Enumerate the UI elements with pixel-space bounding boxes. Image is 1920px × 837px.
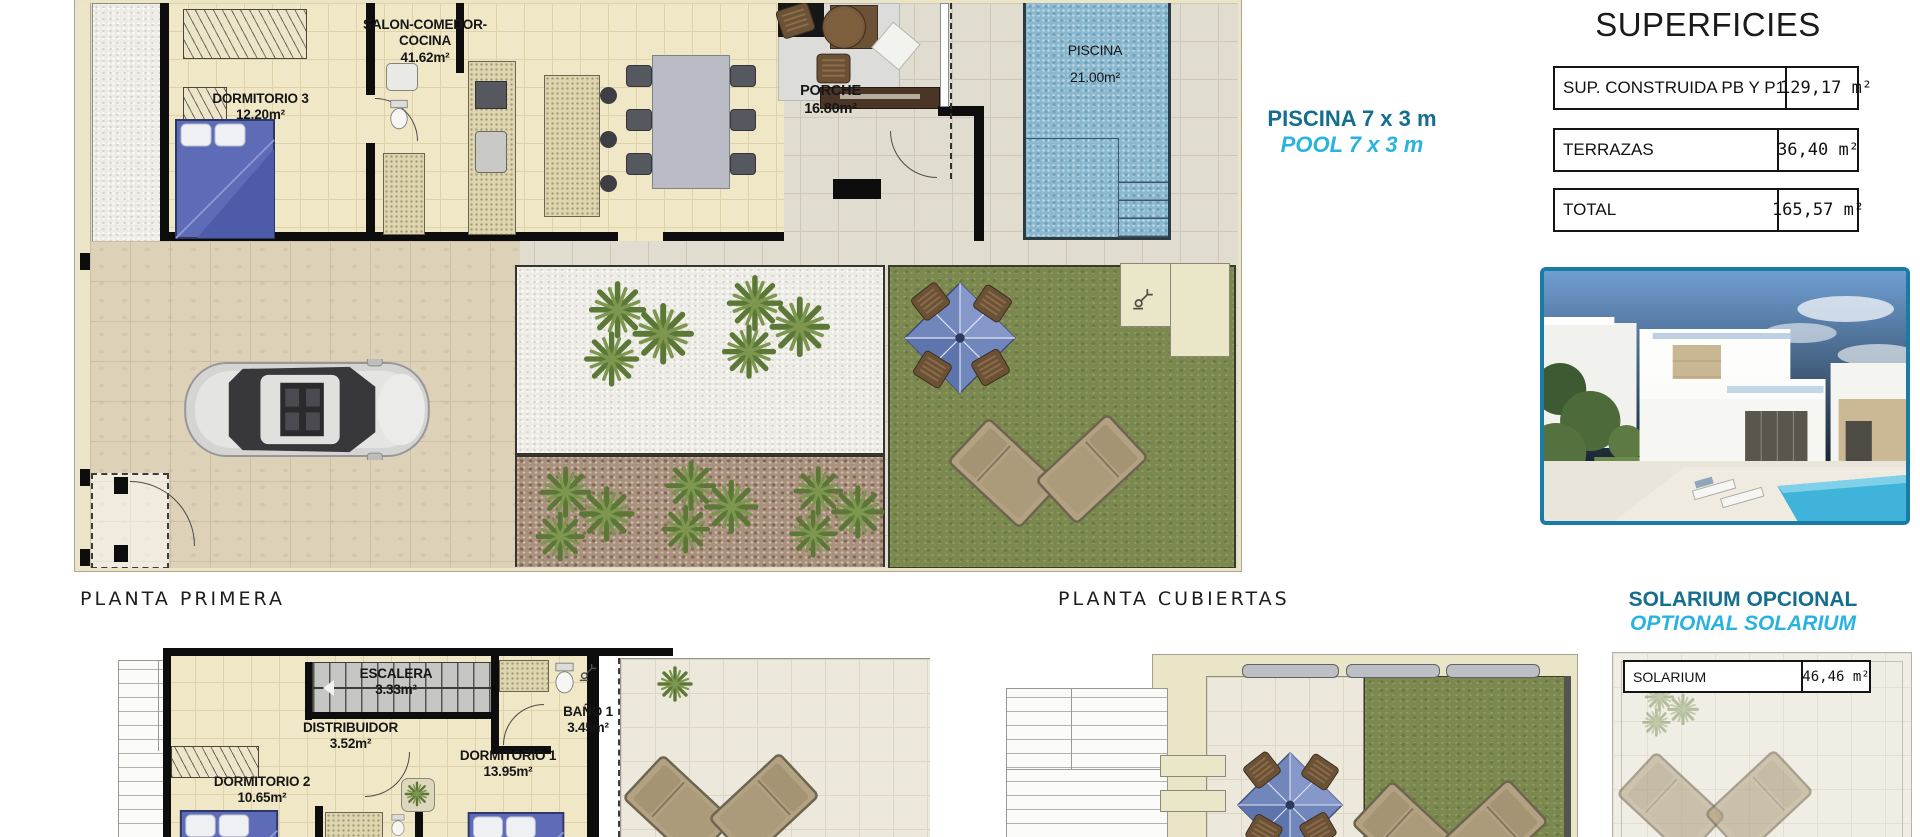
pool-size-en: POOL 7 x 3 m <box>1252 132 1452 158</box>
roof-plan <box>906 648 1606 837</box>
pool <box>1023 0 1171 240</box>
bed-icon <box>174 119 276 239</box>
villa-photo-render <box>1544 271 1906 521</box>
terrace-dashed-boundary <box>618 658 620 837</box>
solarium-title: SOLARIUM OPCIONAL OPTIONAL SOLARIUM <box>1608 588 1878 636</box>
superficies-row-label: SUP. CONSTRUIDA PB Y P1 <box>1555 68 1787 108</box>
toilet-icon <box>388 99 410 131</box>
first-floor-plan: ESCALERA 3.33m² DISTRIBUIDOR 3.52m² BAÑO… <box>115 648 930 837</box>
superficies-row-value: 36,40 m² <box>1779 130 1857 170</box>
wall <box>366 143 375 241</box>
room-label-dormitorio3: DORMITORIO 3 12.20m² <box>188 91 333 124</box>
kitchen-island <box>544 75 600 217</box>
room-area: 3.33m² <box>331 682 461 698</box>
bed-icon <box>179 810 279 837</box>
gate-post <box>114 545 128 562</box>
room-name: SALON-COMEDOR-COCINA <box>340 17 510 50</box>
wall-stub <box>833 179 881 199</box>
room-label-escalera: ESCALERA 3.33m² <box>331 666 461 699</box>
gate-post <box>114 477 128 494</box>
label-planta-primera: PLANTA PRIMERA <box>80 588 285 610</box>
dining-chair <box>626 153 652 175</box>
superficies-title: SUPERFICIES <box>1553 6 1863 44</box>
partial-area-label: 1.00m² <box>613 0 723 3</box>
dining-table <box>652 55 730 189</box>
room-label-piscina: PISCINA 21.00m² <box>1026 37 1164 90</box>
wall <box>305 662 312 720</box>
wardrobe <box>183 9 307 59</box>
stool <box>600 131 617 148</box>
wall <box>160 3 169 241</box>
superficies-row: TERRAZAS 36,40 m² <box>1553 128 1859 172</box>
room-name: PISCINA <box>1026 37 1164 64</box>
kitchen-sink <box>475 131 507 173</box>
bath-floor <box>383 153 425 235</box>
pool-lane <box>1026 138 1119 237</box>
exterior-stairs <box>1006 688 1168 837</box>
toilet-icon <box>387 814 409 837</box>
villa-photo <box>1540 267 1910 525</box>
vanity <box>499 660 549 692</box>
wall <box>974 106 984 241</box>
solarium-table-label: SOLARIUM <box>1625 662 1803 691</box>
bench <box>1160 790 1226 812</box>
bed-icon <box>467 812 565 837</box>
shower-pad <box>1170 263 1230 357</box>
room-label-salon: SALON-COMEDOR-COCINA 41.62m² <box>340 17 510 66</box>
ground-floor-plan: SALON-COMEDOR-COCINA 41.62m² DORMITORIO … <box>75 0 1241 571</box>
wall <box>663 232 784 241</box>
solar-panel <box>1446 664 1540 678</box>
bench <box>1160 755 1226 777</box>
superficies-row-label: TOTAL <box>1555 190 1779 230</box>
sink <box>386 63 418 91</box>
partial-text: 3.00m² <box>423 0 533 3</box>
shower-icon <box>577 662 599 684</box>
wall <box>312 712 498 719</box>
pool-size-title: PISCINA 7 x 3 m POOL 7 x 3 m <box>1252 106 1452 158</box>
dining-chair <box>730 109 756 131</box>
room-name: BAÑO 1 <box>543 704 633 720</box>
gravel-strip <box>92 3 162 245</box>
room-name: DISTRIBUIDOR <box>283 720 418 736</box>
car-icon <box>183 359 431 460</box>
partial-text: 1.00m² <box>613 0 723 3</box>
porch-boundary-dashed <box>950 3 952 179</box>
room-label-dormitorio1: DORMITORIO 1 13.95m² <box>443 748 573 781</box>
superficies-row-value: 129,17 m² <box>1787 68 1865 108</box>
wall <box>491 656 499 754</box>
room-area: 3.45m² <box>543 720 633 736</box>
stool <box>600 87 617 104</box>
shower-tray <box>325 812 383 837</box>
shower-icon <box>1130 287 1156 313</box>
palm-icon <box>784 461 888 565</box>
room-area: 21.00m² <box>1026 64 1164 91</box>
plan-sheet: SALON-COMEDOR-COCINA 41.62m² DORMITORIO … <box>0 0 1920 837</box>
dining-chair <box>730 153 756 175</box>
dining-chair <box>626 109 652 131</box>
solar-panel <box>1242 664 1339 678</box>
solarium-title-en: OPTIONAL SOLARIUM <box>1608 612 1878 636</box>
solarium-title-es: SOLARIUM OPCIONAL <box>1608 588 1878 612</box>
room-label-bano1: BAÑO 1 3.45m² <box>543 704 633 737</box>
label-planta-cubiertas: PLANTA CUBIERTAS <box>1058 588 1290 610</box>
room-label-dormitorio2: DORMITORIO 2 10.65m² <box>197 774 327 807</box>
dining-chair <box>730 65 756 87</box>
porch-table <box>822 5 866 49</box>
palm-icon <box>655 664 695 704</box>
plant-icon <box>403 780 431 808</box>
superficies-row-label: TERRAZAS <box>1555 130 1779 170</box>
stool <box>600 175 617 192</box>
palm-icon <box>578 275 698 395</box>
wall <box>163 648 171 837</box>
room-name: ESCALERA <box>331 666 461 682</box>
room-area: 10.65m² <box>197 790 327 806</box>
room-name: DORMITORIO 2 <box>197 774 327 790</box>
wall <box>315 806 323 837</box>
palm-icon <box>656 455 762 561</box>
superficies-row: TOTAL 165,57 m² <box>1553 188 1859 232</box>
palm-icon <box>716 269 834 387</box>
palm-icon <box>530 461 638 569</box>
parapet-wall <box>1564 676 1571 837</box>
room-area: 16.80m² <box>773 101 888 119</box>
pool-steps <box>1118 165 1168 237</box>
porch-door-arc <box>890 131 937 178</box>
glass-door <box>940 3 949 107</box>
superficies-row: SUP. CONSTRUIDA PB Y P1 129,17 m² <box>1553 66 1859 110</box>
room-area: 3.52m² <box>283 736 418 752</box>
superficies-row-value: 165,57 m² <box>1779 190 1857 230</box>
toilet-icon <box>553 662 576 695</box>
solarium-table-value: 46,46 m² <box>1803 662 1869 691</box>
solarium-table-row: SOLARIUM 46,46 m² <box>1623 660 1871 693</box>
room-label-distribuidor: DISTRIBUIDOR 3.52m² <box>283 720 418 753</box>
room-area: 12.20m² <box>188 107 333 123</box>
room-name: DORMITORIO 3 <box>188 91 333 107</box>
room-name: PORCHE <box>773 83 888 101</box>
room-area: 41.62m² <box>340 50 510 66</box>
solar-panel <box>1346 664 1440 678</box>
pool-size-es: PISCINA 7 x 3 m <box>1252 106 1452 132</box>
partial-area-label: 3.00m² <box>423 0 533 3</box>
cooktop <box>475 81 507 109</box>
dining-chair <box>626 65 652 87</box>
porch-chair-icon <box>816 53 851 84</box>
room-name: DORMITORIO 1 <box>443 748 573 764</box>
room-label-porche: PORCHE 16.80m² <box>773 83 888 118</box>
room-area: 13.95m² <box>443 764 573 780</box>
